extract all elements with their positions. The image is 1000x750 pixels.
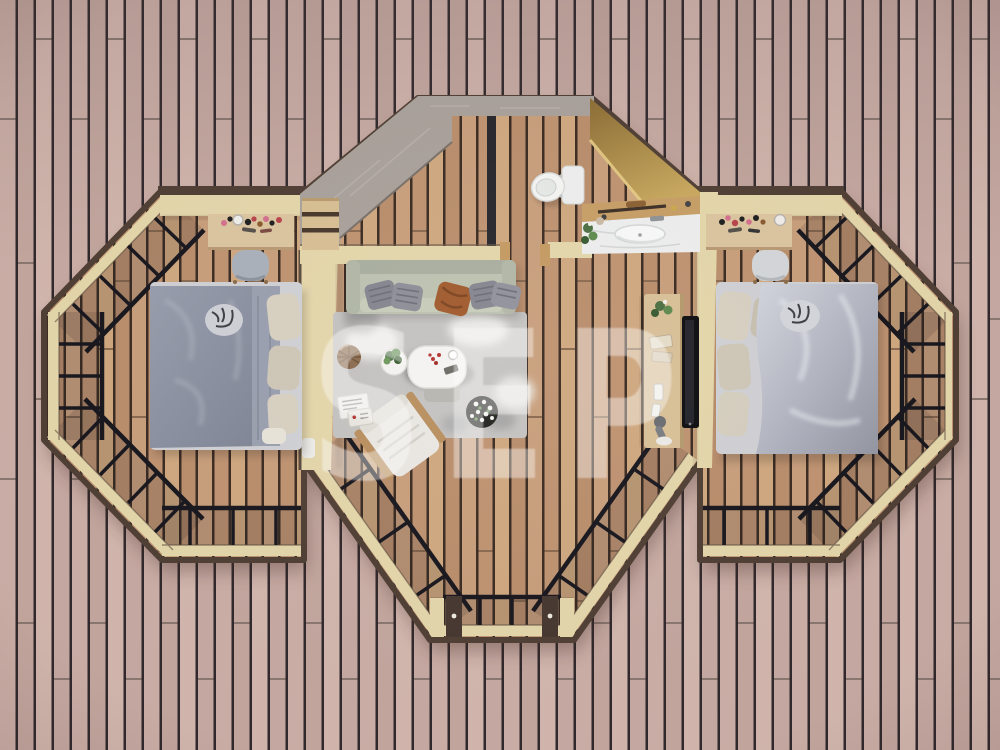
floor-plan-render: SEP: [0, 0, 1000, 750]
vignette-overlay: [0, 0, 1000, 750]
